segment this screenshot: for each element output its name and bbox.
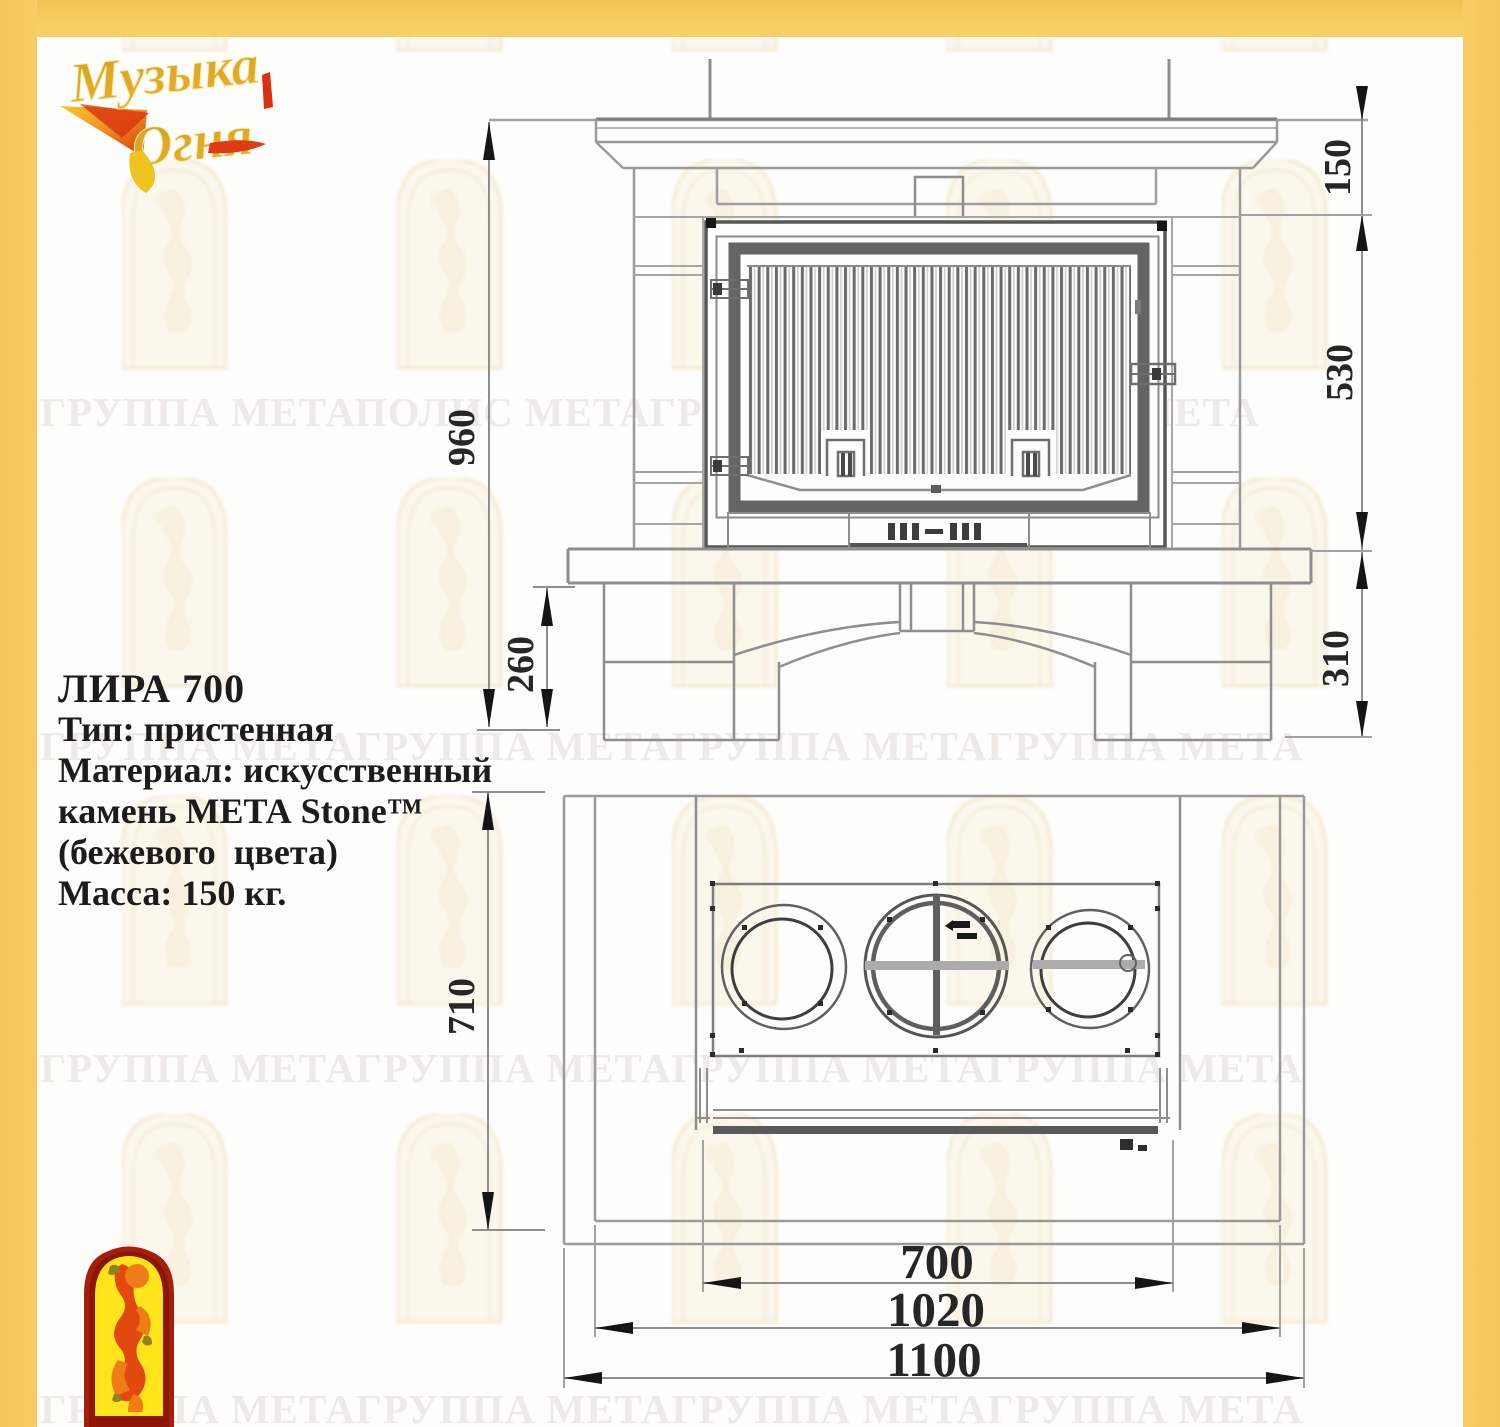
svg-text:710: 710 xyxy=(441,978,483,1035)
svg-text:1100: 1100 xyxy=(886,1332,981,1387)
svg-text:530: 530 xyxy=(1319,344,1361,401)
svg-text:700: 700 xyxy=(900,1234,974,1289)
svg-text:260: 260 xyxy=(500,636,542,693)
svg-text:960: 960 xyxy=(441,409,483,466)
svg-text:310: 310 xyxy=(1315,630,1357,687)
svg-text:Музыка: Музыка xyxy=(66,45,262,115)
svg-text:150: 150 xyxy=(1317,139,1359,196)
svg-text:1020: 1020 xyxy=(887,1282,985,1337)
